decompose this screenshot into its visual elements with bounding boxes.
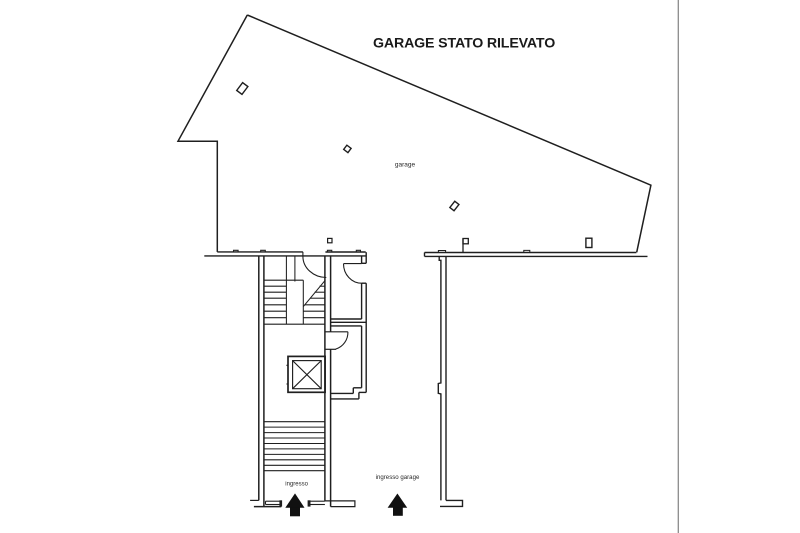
svg-text:GARAGE STATO RILEVATO: GARAGE STATO RILEVATO [373, 36, 555, 52]
svg-text:garage: garage [395, 162, 416, 169]
svg-text:ingresso: ingresso [285, 482, 308, 488]
svg-text:ingresso garage: ingresso garage [376, 474, 420, 481]
